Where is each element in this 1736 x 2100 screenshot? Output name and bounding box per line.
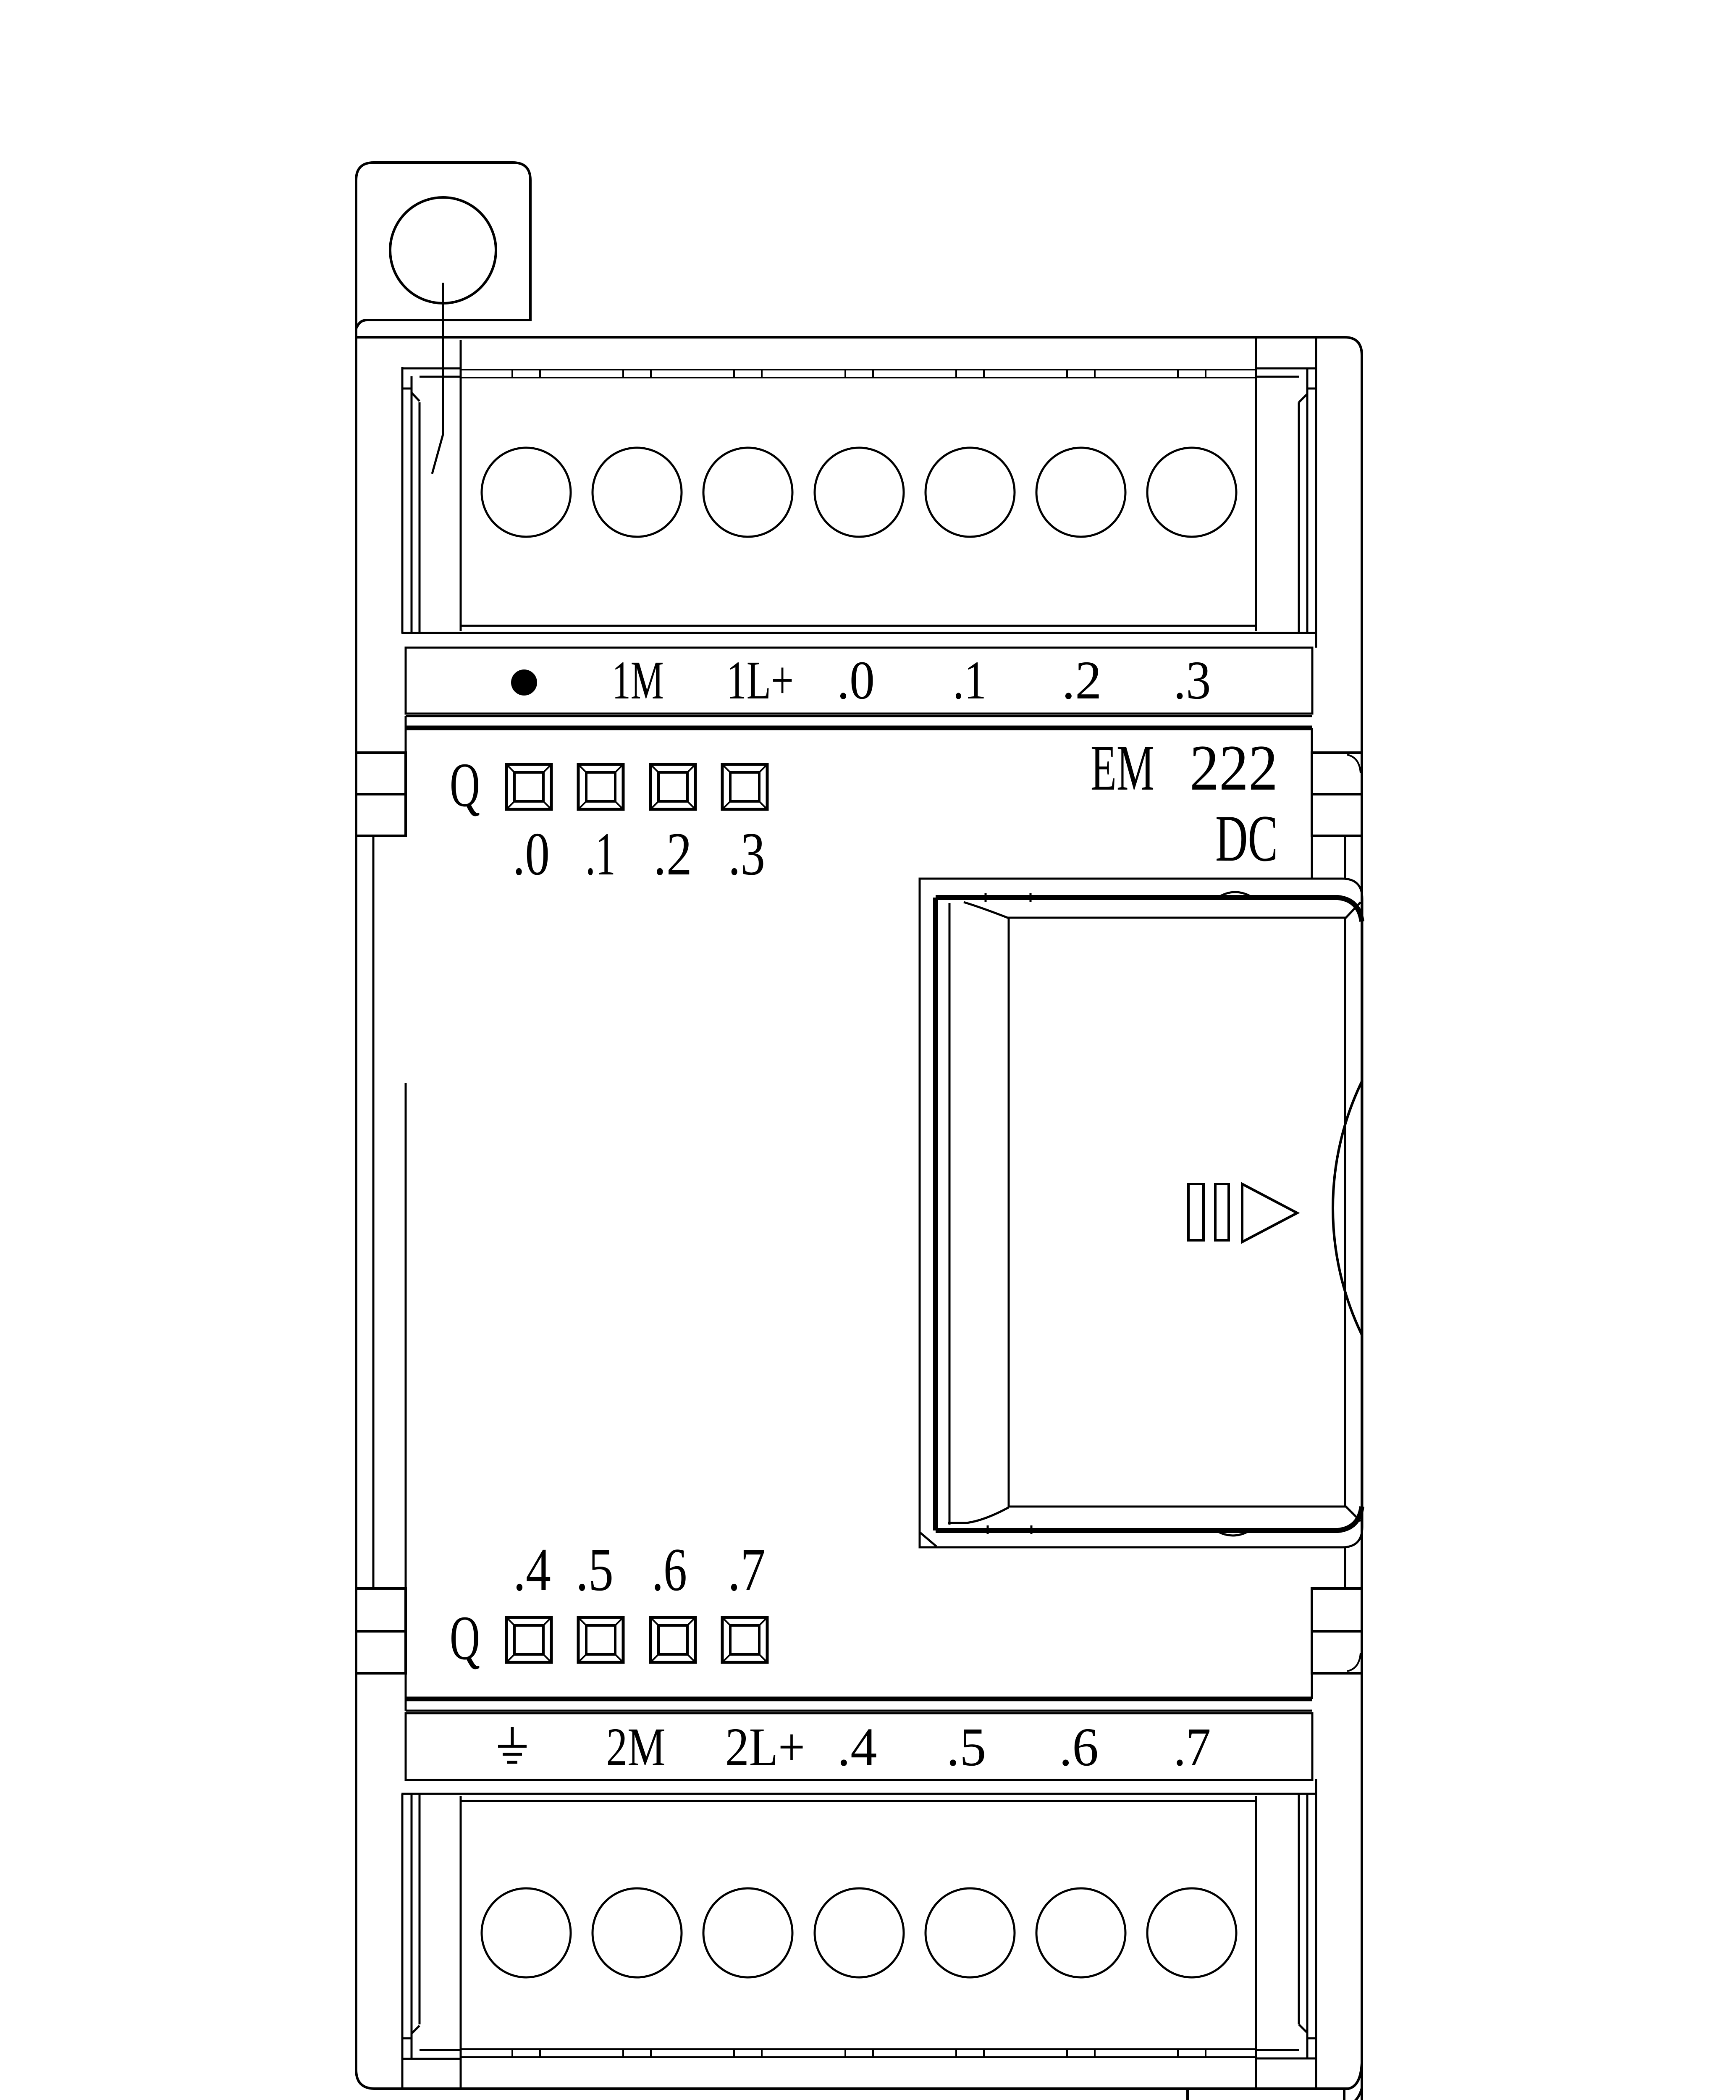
svg-text:.2: .2: [1062, 650, 1102, 711]
svg-text:.5: .5: [947, 1717, 986, 1777]
svg-text:2L+: 2L+: [725, 1717, 805, 1777]
svg-text:Q: Q: [450, 750, 480, 820]
svg-text:.1: .1: [953, 650, 986, 711]
svg-text:DC: DC: [1215, 802, 1278, 875]
svg-text:.6: .6: [652, 1536, 687, 1604]
svg-text:1L+: 1L+: [726, 650, 794, 711]
svg-text:.0: .0: [837, 650, 875, 711]
svg-text:.6: .6: [1059, 1717, 1099, 1777]
svg-text:.4: .4: [837, 1717, 877, 1777]
svg-text:.4: .4: [513, 1536, 551, 1604]
svg-text:EM: EM: [1091, 732, 1154, 804]
svg-text:Q: Q: [450, 1603, 480, 1673]
svg-text:.5: .5: [576, 1536, 614, 1604]
svg-text:.7: .7: [728, 1536, 766, 1604]
svg-text:222: 222: [1190, 732, 1278, 804]
svg-text:.7: .7: [1174, 1717, 1211, 1777]
svg-text:.2: .2: [653, 820, 692, 888]
svg-text:.0: .0: [513, 820, 550, 888]
svg-text:2M: 2M: [606, 1717, 666, 1777]
svg-text:.3: .3: [1174, 650, 1211, 711]
svg-text:.3: .3: [728, 820, 765, 888]
svg-text:1M: 1M: [612, 650, 664, 711]
svg-text:.1: .1: [585, 820, 616, 888]
